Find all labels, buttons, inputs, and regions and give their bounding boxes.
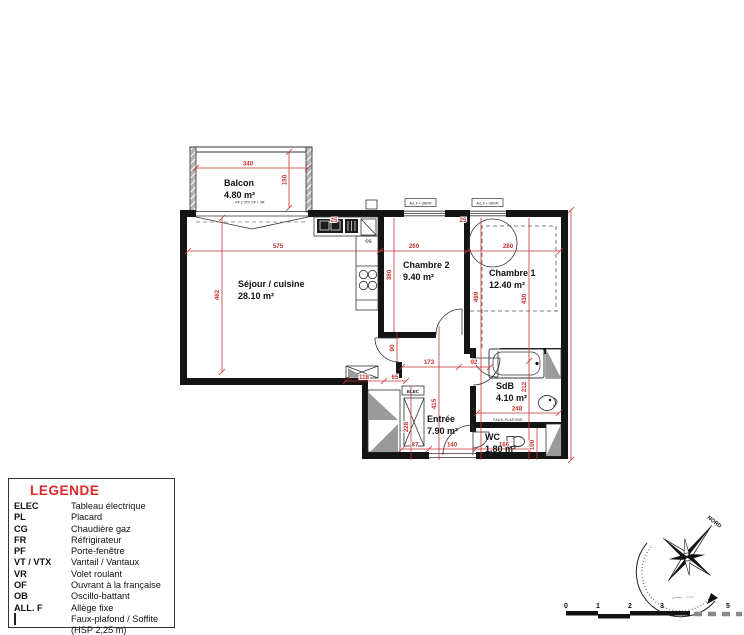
dim-label: 118: [359, 374, 370, 381]
room-area-chambre2: 9.40 m²: [403, 272, 434, 282]
legend-row: VT / VTXVantail / Vantaux: [14, 557, 169, 568]
bathtub: [489, 349, 544, 378]
stove: [359, 270, 376, 289]
north-label: NORD: [706, 515, 722, 530]
door-chambre2: [436, 309, 462, 335]
balcony-door: [196, 212, 308, 230]
dim-label: 212: [521, 381, 528, 392]
scale-tick: 3: [660, 603, 664, 610]
soffit-note: FAUX-PLAFOND: [493, 418, 523, 422]
legend-row: PFPorte-fenêtre: [14, 546, 169, 557]
dim-label: 65: [392, 374, 399, 381]
dim-label: 173: [424, 359, 435, 366]
room-name-entree: Entrée: [427, 414, 455, 424]
window-label-1: ALL.F + OB/VR: [409, 202, 432, 206]
cg-label: CG: [365, 239, 371, 244]
legend-row: OBOscillo-battant: [14, 591, 169, 602]
hatch-swatch: [14, 613, 16, 625]
balcony-door-label: PF 2 VTX OF + VR: [236, 201, 265, 205]
legend-row: ALL. FAllège fixe: [14, 603, 169, 614]
washbasin: [539, 396, 558, 411]
dim-label: 92: [471, 359, 478, 366]
scale-tick: 2: [628, 603, 632, 610]
dim-label: 25: [460, 217, 467, 224]
hatched-column: [368, 390, 400, 452]
dim-label: 499: [473, 291, 480, 302]
scale-tick: 5: [726, 603, 730, 610]
dim-label: 260: [409, 243, 420, 250]
legend-row: Faux-plafond / Soffite (HSP 2,25 m): [14, 614, 169, 635]
dim-label: 575: [273, 243, 284, 250]
elec-panel: ELEC: [402, 386, 424, 395]
room-area-entree: 7.90 m²: [427, 426, 458, 436]
dim-label: 150: [282, 174, 289, 185]
legend-row: PLPlacard: [14, 512, 169, 523]
scale-tick: 1: [596, 603, 600, 610]
kitchen: [314, 217, 378, 310]
dim-label: 248: [512, 406, 523, 413]
room-area-sejour: 28.10 m²: [238, 291, 274, 301]
compass-rose: NORD: [636, 501, 739, 616]
room-name-chambre1: Chambre 1: [489, 268, 536, 278]
legend-row: VRVolet roulant: [14, 569, 169, 580]
room-name-sdb: SdB: [496, 381, 515, 391]
room-area-chambre1: 12.40 m²: [489, 280, 525, 290]
legend-row: ELECTableau électrique: [14, 501, 169, 512]
duct-sdb: [546, 349, 561, 378]
balcony-wall-right: [306, 147, 312, 212]
room-name-balcon: Balcon: [224, 178, 254, 188]
dim-label: 90: [389, 344, 396, 351]
dim-label: 280: [503, 243, 514, 250]
dim-label: 140: [447, 442, 458, 449]
dim-label: 360: [386, 269, 393, 280]
elec-label: ELEC: [407, 389, 420, 394]
dim-label: 415: [431, 398, 438, 409]
dim-label: 87: [412, 442, 419, 449]
room-area-balcon: 4.80 m²: [224, 190, 255, 200]
room-name-sejour: Séjour / cuisine: [238, 279, 305, 289]
legend-title: LEGENDE: [30, 483, 169, 498]
legend-row: OFOuvrant à la française: [14, 580, 169, 591]
room-name-wc: WC: [485, 432, 500, 442]
dim-label: 430: [521, 293, 528, 304]
room-area-wc: 1.80 m²: [485, 444, 516, 454]
balcony-wall-left: [190, 147, 196, 212]
dim-label: 25: [331, 217, 338, 224]
legend-row: CGChaudière gaz: [14, 524, 169, 535]
dim-label: 340: [243, 161, 254, 168]
scale-tick: 0: [564, 603, 568, 610]
legend-row: FRRéfrigirateur: [14, 535, 169, 546]
floorplan-page: ELEC CG FAUX-PLAFOND: [0, 0, 744, 635]
duct-marker: [366, 200, 377, 209]
room-name-chambre2: Chambre 2: [403, 260, 450, 270]
duct-wc: [546, 424, 561, 456]
room-area-sdb: 4.10 m²: [496, 393, 527, 403]
dim-label: 100: [529, 439, 536, 450]
dim-label: 228: [403, 421, 410, 432]
legend-box: LEGENDE ELECTableau électrique PLPlacard…: [8, 478, 175, 628]
dim-label: 462: [214, 289, 221, 300]
window-label-2: ALL.F + OB/VR: [476, 202, 499, 206]
